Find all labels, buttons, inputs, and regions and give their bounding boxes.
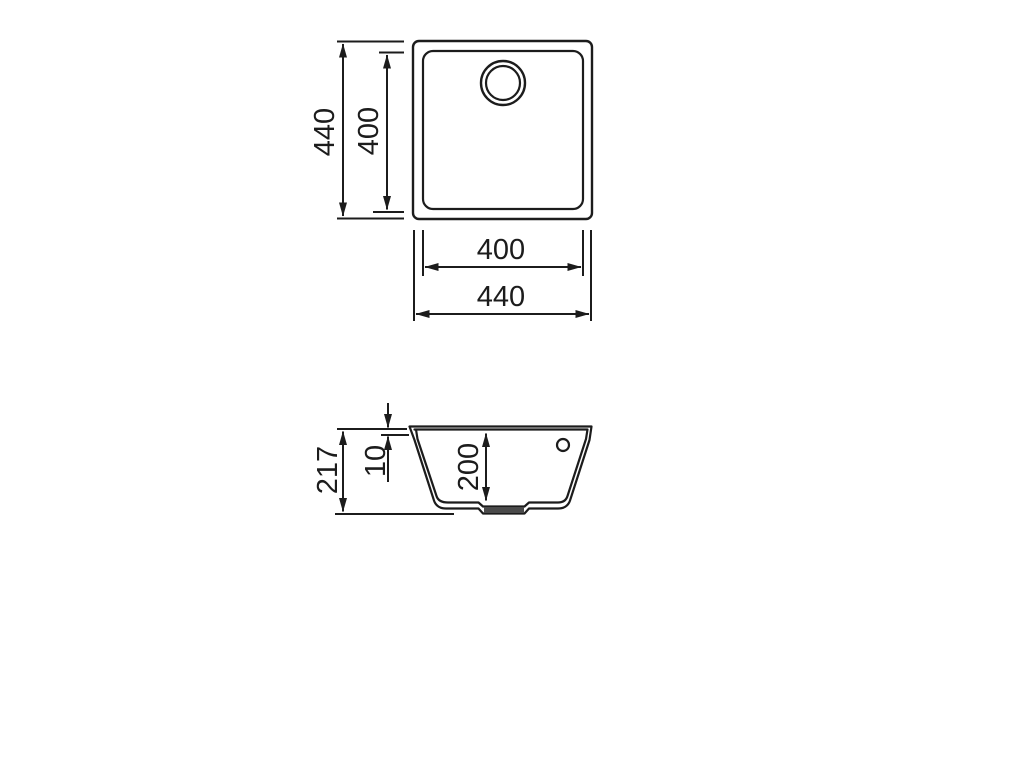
dim-top-inner-width: 400	[423, 230, 583, 276]
dim-label-overall-depth: 217	[312, 446, 344, 494]
dim-label-outer-height: 440	[309, 108, 341, 156]
dim-side-bowl-depth: 200	[453, 434, 486, 501]
dim-label-bowl-depth: 200	[453, 443, 485, 491]
side-view: 217 10 200	[312, 403, 591, 514]
drain-outer-circle	[481, 61, 525, 105]
overflow-hole	[557, 439, 569, 451]
dim-side-rim-height: 10	[360, 403, 409, 482]
top-view: 440 400 400 440	[309, 41, 592, 321]
dim-label-rim-height: 10	[360, 445, 392, 477]
dim-label-inner-height: 400	[353, 107, 385, 155]
dim-label-outer-width: 440	[477, 281, 525, 313]
dim-label-inner-width: 400	[477, 234, 525, 266]
sink-technical-drawing: 440 400 400 440	[0, 0, 1024, 768]
drawing-page: 440 400 400 440	[0, 0, 1024, 768]
dim-top-inner-height: 400	[353, 53, 404, 213]
drain-recess-bar	[484, 507, 524, 513]
